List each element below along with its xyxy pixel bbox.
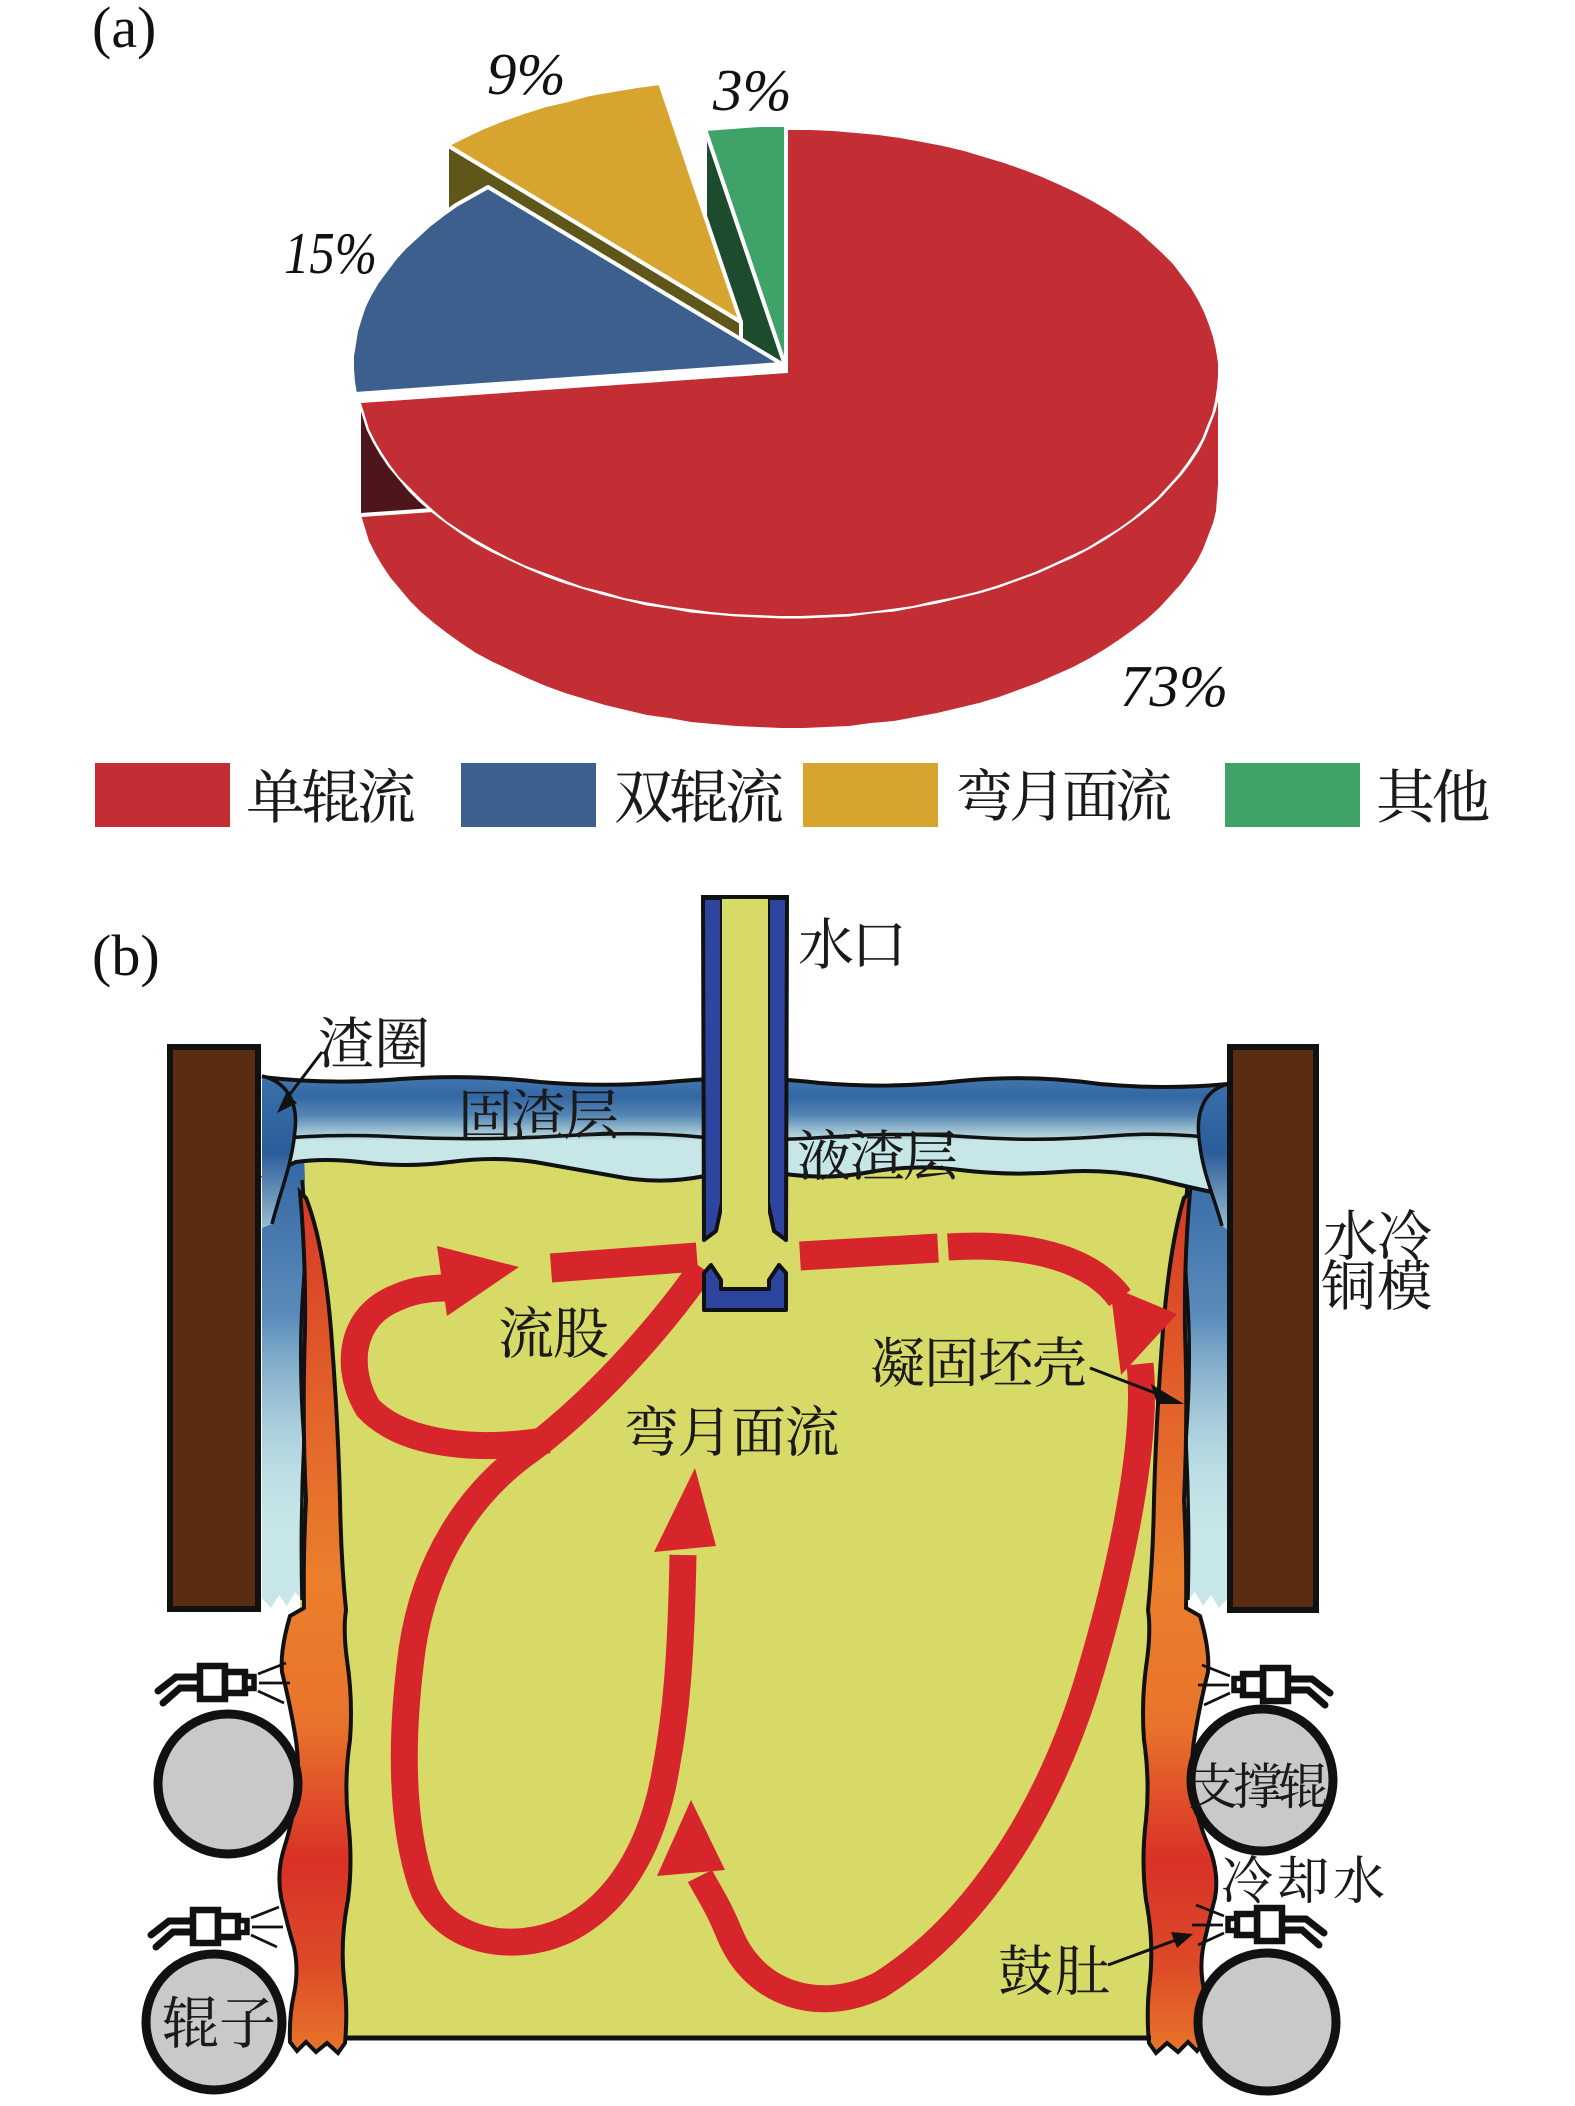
svg-text:9%: 9% [487, 41, 566, 107]
svg-text:73%: 73% [1120, 653, 1228, 719]
svg-text:(a): (a) [92, 0, 156, 60]
svg-text:3%: 3% [712, 57, 792, 123]
svg-text:(b): (b) [92, 923, 160, 988]
svg-text:15%: 15% [284, 220, 377, 286]
